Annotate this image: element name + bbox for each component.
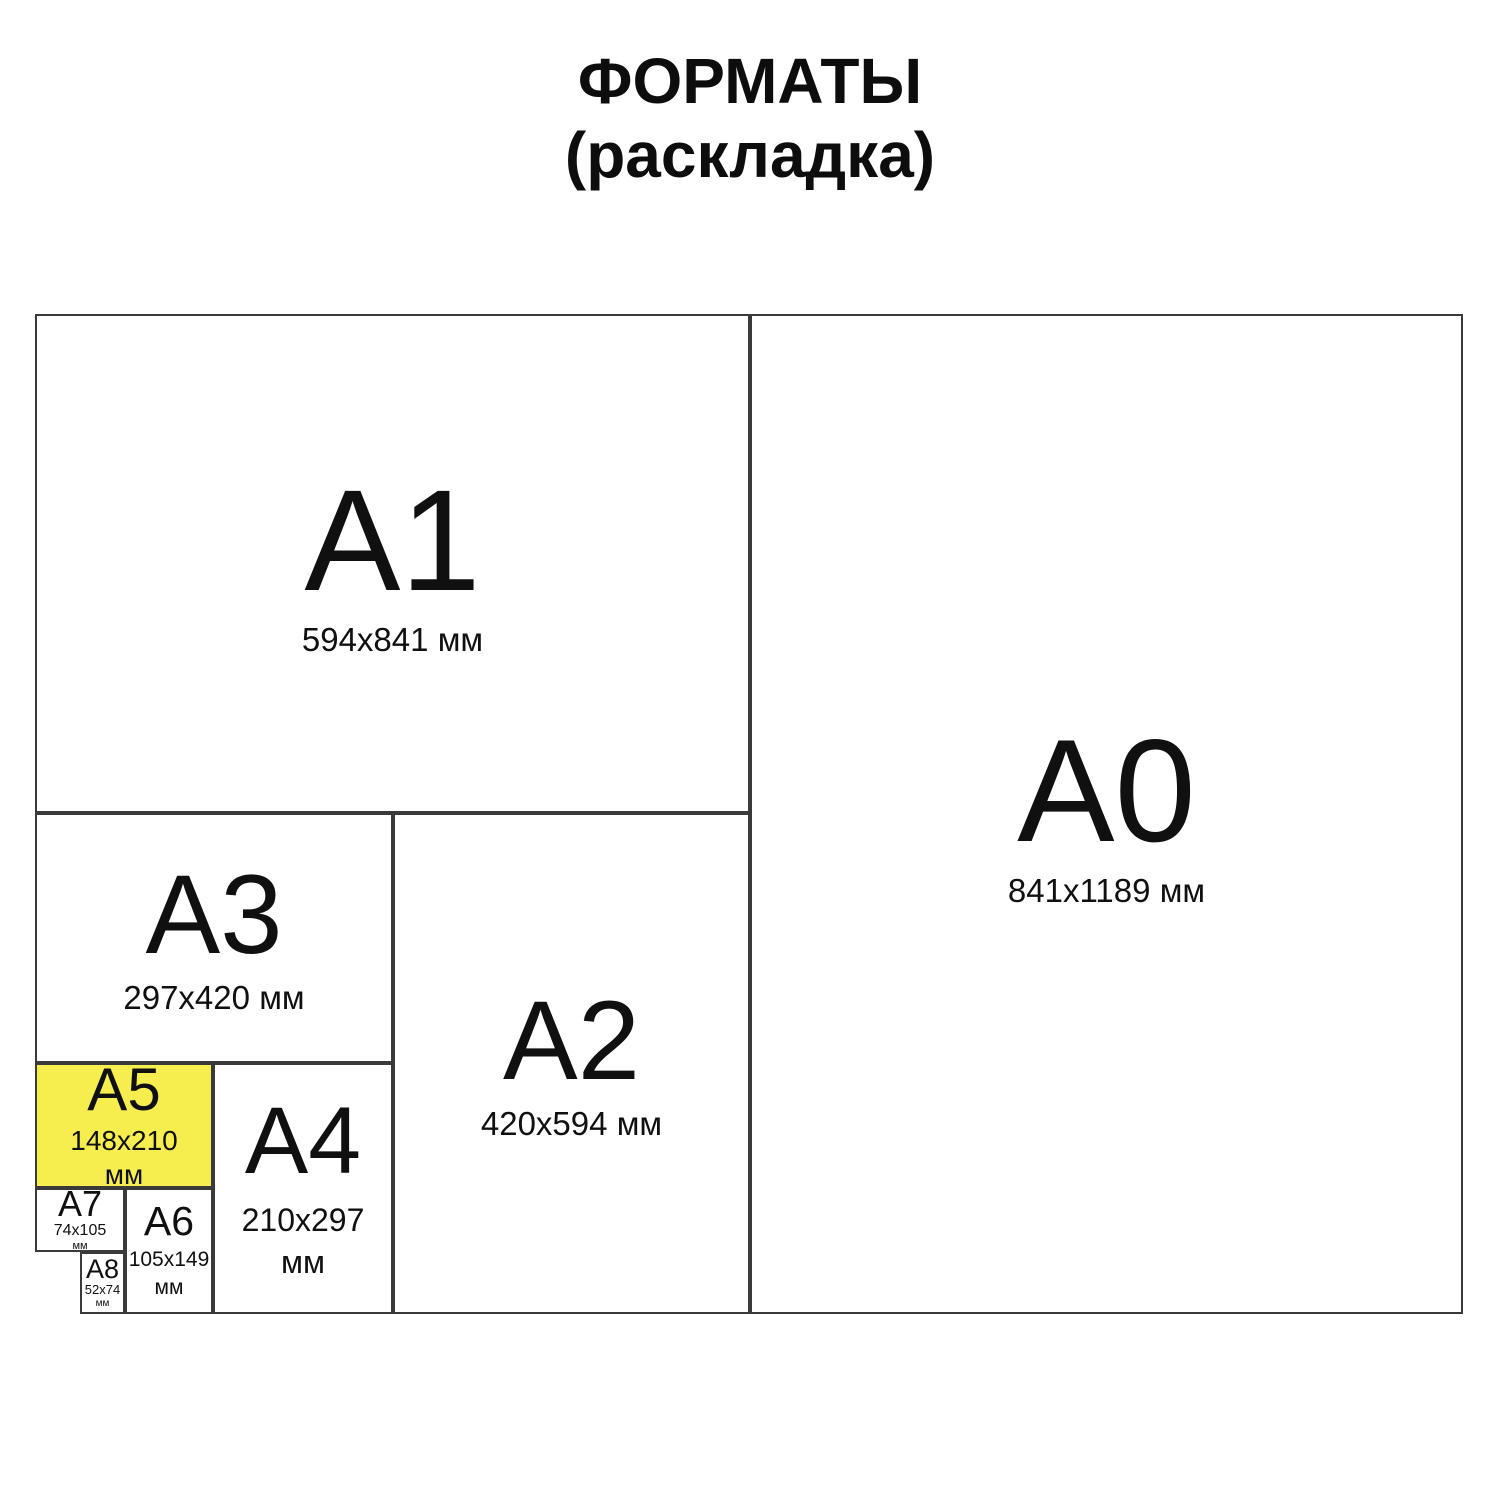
format-size-a4: 210x297 xyxy=(242,1199,365,1241)
format-dimensions-a5: 148x210 мм xyxy=(70,1124,177,1188)
paper-a6: A6 105x149 мм xyxy=(125,1188,213,1314)
format-label-a5: A5 xyxy=(87,1063,160,1120)
format-dimensions-a6: 105x149 мм xyxy=(129,1246,210,1301)
format-unit-a5: мм xyxy=(70,1158,177,1189)
format-unit-a0: мм xyxy=(1160,872,1205,909)
formats-poster: ФОРМАТЫ (раскладка) A1 594x841мм A0 841x… xyxy=(0,0,1500,1500)
format-dimensions-a7: 74x105 мм xyxy=(54,1222,107,1252)
format-size-a0: 841x1189 xyxy=(1008,872,1151,909)
format-label-a6: A6 xyxy=(144,1201,194,1242)
format-label-a4: A4 xyxy=(245,1094,361,1189)
paper-a4: A4 210x297 мм xyxy=(213,1063,393,1314)
format-dimensions-a8: 52x74 мм xyxy=(85,1283,120,1309)
format-unit-a2: мм xyxy=(617,1105,662,1142)
format-label-a7: A7 xyxy=(58,1188,102,1221)
format-unit-a7: мм xyxy=(54,1240,107,1252)
title-line-1: ФОРМАТЫ xyxy=(0,44,1500,118)
format-label-a1: A1 xyxy=(304,469,480,613)
page-title: ФОРМАТЫ (раскладка) xyxy=(0,44,1500,192)
format-unit-a4: мм xyxy=(242,1241,365,1283)
format-label-a8: A8 xyxy=(86,1257,119,1283)
paper-a2: A2 420x594мм xyxy=(393,813,750,1314)
format-size-a1: 594x841 xyxy=(302,621,429,658)
format-unit-a8: мм xyxy=(85,1298,120,1309)
format-size-a3: 297x420 xyxy=(123,979,250,1016)
title-line-2: (раскладка) xyxy=(0,118,1500,192)
format-dimensions-a3: 297x420мм xyxy=(123,979,304,1017)
format-dimensions-a2: 420x594мм xyxy=(481,1105,662,1143)
format-label-a0: A0 xyxy=(1017,718,1196,864)
format-label-a2: A2 xyxy=(503,985,640,1097)
paper-a3: A3 297x420мм xyxy=(35,813,393,1063)
format-unit-a3: мм xyxy=(259,979,304,1016)
format-size-a2: 420x594 xyxy=(481,1105,608,1142)
paper-a0: A0 841x1189мм xyxy=(750,314,1463,1314)
paper-a7: A7 74x105 мм xyxy=(35,1188,125,1252)
format-unit-a1: мм xyxy=(438,621,483,658)
format-label-a3: A3 xyxy=(146,859,283,971)
paper-a8: A8 52x74 мм xyxy=(80,1252,125,1314)
format-size-a8: 52x74 xyxy=(85,1283,120,1298)
format-dimensions-a4: 210x297 мм xyxy=(242,1199,365,1283)
format-dimensions-a1: 594x841мм xyxy=(302,621,483,659)
format-dimensions-a0: 841x1189мм xyxy=(1008,872,1205,910)
format-size-a5: 148x210 xyxy=(70,1124,177,1157)
format-unit-a6: мм xyxy=(129,1274,210,1302)
format-size-a7: 74x105 xyxy=(54,1222,107,1240)
format-size-a6: 105x149 xyxy=(129,1246,210,1274)
paper-a5-highlighted: A5 148x210 мм xyxy=(35,1063,213,1188)
paper-a1: A1 594x841мм xyxy=(35,314,750,813)
